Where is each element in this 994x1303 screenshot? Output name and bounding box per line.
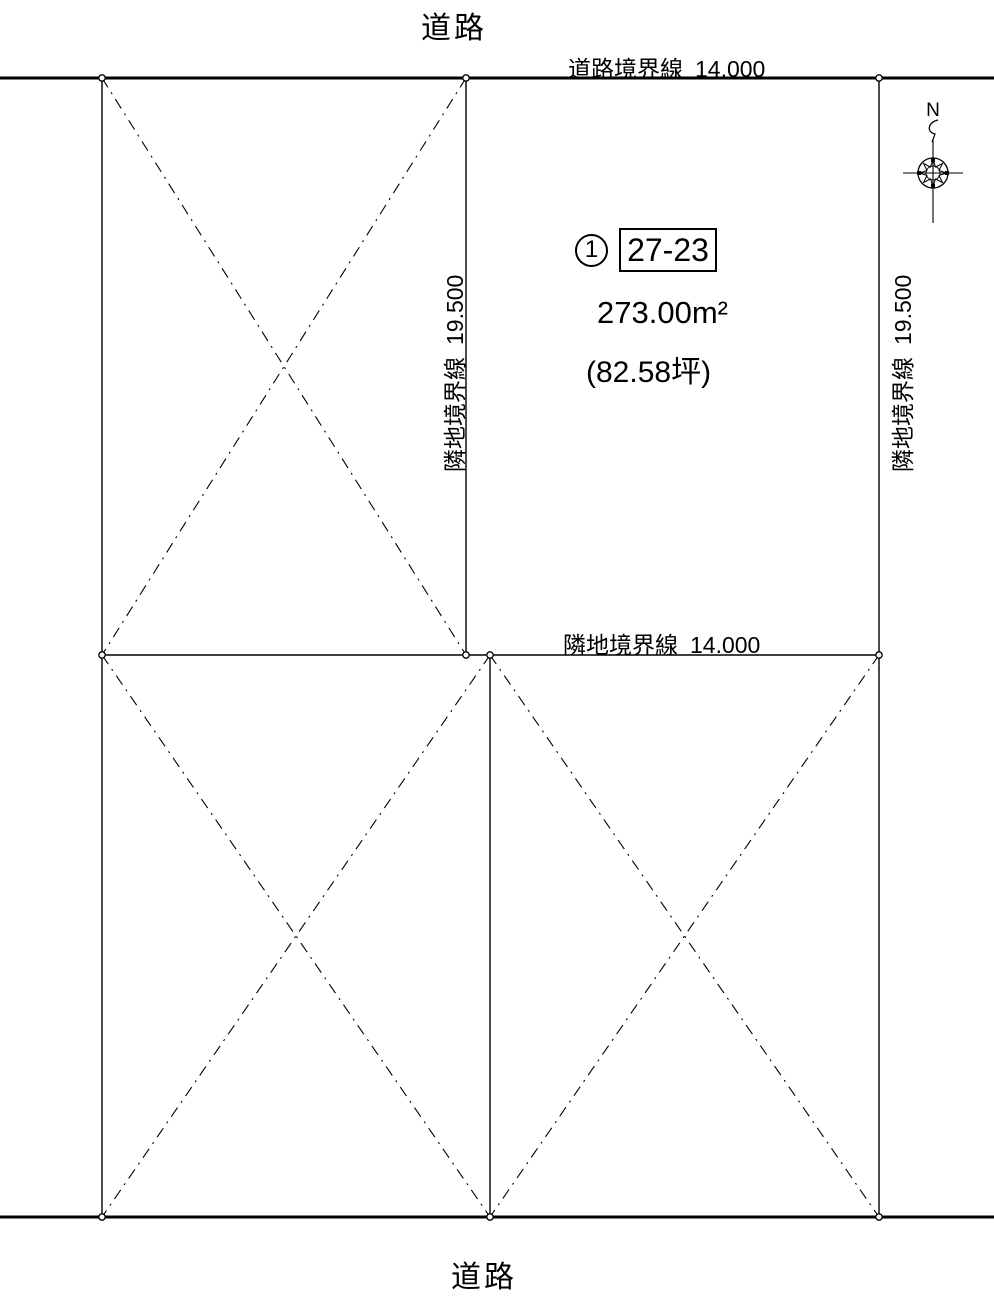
boundary-label-left-adjacent: 隣地境界線19.500 <box>436 275 470 472</box>
lot-number-circle: 1 <box>575 234 608 267</box>
survey-point <box>876 652 882 658</box>
boundary-length: 19.500 <box>890 275 916 345</box>
boundary-name: 隣地境界線 <box>442 357 468 472</box>
survey-point <box>463 652 469 658</box>
site-plan-drawing: N 道路 道路 道路境界線14.000 隣地境界線14.000 隣地境界線19.… <box>0 0 994 1303</box>
road-label-top: 道路 <box>421 3 487 47</box>
lot-identifier: 1 27-23 <box>575 228 717 272</box>
boundary-length: 14.000 <box>690 632 760 658</box>
boundary-length: 19.500 <box>442 275 468 345</box>
survey-point <box>99 75 105 81</box>
compass-rose: N <box>903 100 963 223</box>
survey-point <box>487 1214 493 1220</box>
compass-north-label: N <box>926 100 940 121</box>
survey-point <box>99 1214 105 1220</box>
plan-linework: N <box>0 0 994 1303</box>
lot-area-tsubo: (82.58坪) <box>586 347 711 391</box>
boundary-length: 14.000 <box>695 56 765 82</box>
boundary-label-right-adjacent: 隣地境界線19.500 <box>884 275 918 472</box>
road-label-bottom: 道路 <box>451 1252 517 1296</box>
boundary-name: 隣地境界線 <box>563 632 678 658</box>
survey-point <box>99 652 105 658</box>
boundary-name: 道路境界線 <box>568 56 683 82</box>
survey-point <box>487 652 493 658</box>
north-arrow-hook <box>929 120 938 142</box>
survey-point <box>463 75 469 81</box>
survey-point <box>876 1214 882 1220</box>
boundary-label-top-road: 道路境界線14.000 <box>568 50 765 84</box>
boundary-name: 隣地境界線 <box>890 357 916 472</box>
boundary-label-middle-adjacent: 隣地境界線14.000 <box>563 626 760 660</box>
lot-area-square-meters: 273.00m² <box>597 295 728 331</box>
survey-point <box>876 75 882 81</box>
lot-code-box: 27-23 <box>619 228 717 272</box>
